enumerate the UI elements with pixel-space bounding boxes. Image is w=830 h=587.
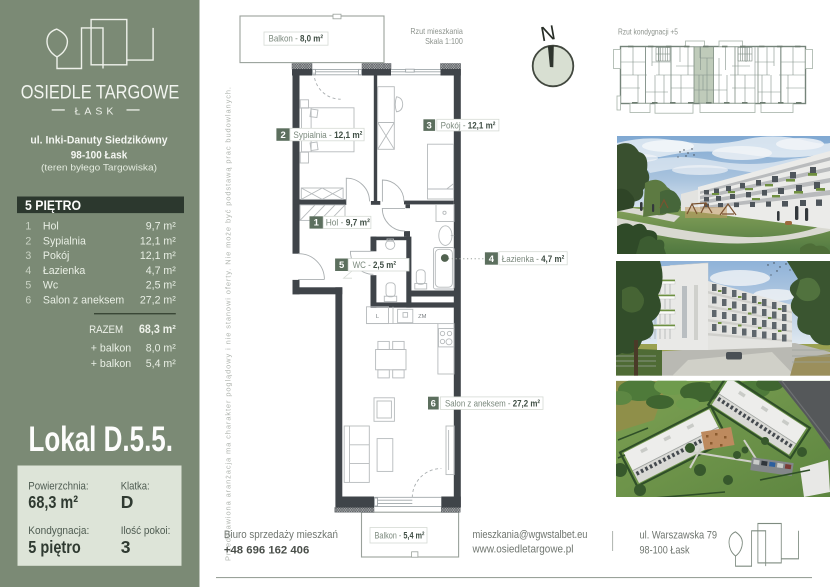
svg-text:5 piętro: 5 piętro — [28, 537, 81, 557]
svg-text:12,1 m²: 12,1 m² — [140, 250, 176, 262]
svg-text:Pokój - 12,1 m²: Pokój - 12,1 m² — [441, 120, 496, 130]
svg-text:ŁASK: ŁASK — [75, 106, 118, 118]
svg-text:Salon z aneksem: Salon z aneksem — [43, 295, 124, 307]
svg-text:Klatka:: Klatka: — [121, 480, 150, 492]
svg-text:Lokal D.5.5.: Lokal D.5.5. — [29, 420, 174, 459]
svg-text:4,7 m²: 4,7 m² — [146, 265, 176, 277]
svg-text:Ilość pokoi:: Ilość pokoi: — [121, 525, 171, 537]
svg-text:Pokój: Pokój — [43, 250, 70, 262]
svg-text:2: 2 — [25, 235, 31, 247]
svg-text:+48 696 162 406: +48 696 162 406 — [224, 545, 309, 557]
svg-text:3: 3 — [427, 120, 432, 131]
svg-text:Hol: Hol — [43, 221, 59, 233]
svg-text:68,3 m²: 68,3 m² — [139, 323, 176, 336]
svg-text:1: 1 — [314, 218, 320, 229]
svg-text:5: 5 — [25, 280, 31, 292]
svg-text:Przedstawiona aranżacja ma cha: Przedstawiona aranżacja ma charakter pog… — [224, 87, 233, 561]
svg-text:Salon z aneksem - 27,2 m²: Salon z aneksem - 27,2 m² — [445, 398, 540, 408]
svg-text:2,5 m²: 2,5 m² — [146, 280, 176, 292]
svg-text:98-100 Łask: 98-100 Łask — [71, 150, 128, 162]
svg-text:5,4 m²: 5,4 m² — [146, 358, 176, 370]
svg-text:Balkon - 5,4 m²: Balkon - 5,4 m² — [375, 531, 425, 541]
svg-text:8,0 m²: 8,0 m² — [146, 343, 176, 355]
svg-text:3: 3 — [121, 537, 131, 557]
svg-text:1: 1 — [25, 221, 31, 233]
svg-text:4: 4 — [489, 254, 495, 265]
svg-text:OSIEDLE TARGOWE: OSIEDLE TARGOWE — [21, 82, 180, 104]
svg-text:Biuro sprzedaży mieszkań: Biuro sprzedaży mieszkań — [224, 529, 338, 541]
svg-text:3: 3 — [25, 250, 31, 262]
svg-text:9,7 m²: 9,7 m² — [146, 221, 176, 233]
svg-text:98-100 Łask: 98-100 Łask — [640, 545, 691, 557]
svg-text:+ balkon: + balkon — [91, 358, 131, 370]
svg-text:4: 4 — [25, 265, 31, 277]
svg-text:6: 6 — [25, 295, 31, 307]
svg-text:5 PIĘTRO: 5 PIĘTRO — [25, 198, 81, 213]
svg-text:Sypialnia - 12,1 m²: Sypialnia - 12,1 m² — [293, 130, 362, 140]
svg-text:L: L — [376, 314, 380, 320]
svg-text:D: D — [121, 492, 134, 512]
svg-text:www.osiedletargowe.pl: www.osiedletargowe.pl — [472, 544, 574, 556]
svg-text:ul. Inki-Danuty Siedzikówny: ul. Inki-Danuty Siedzikówny — [30, 135, 168, 147]
svg-text:Łazienka: Łazienka — [43, 265, 86, 277]
svg-text:Wc: Wc — [43, 280, 59, 292]
svg-text:27,2 m²: 27,2 m² — [140, 295, 176, 307]
svg-text:68,3 m²: 68,3 m² — [28, 492, 78, 512]
svg-text:Sypialnia: Sypialnia — [43, 235, 86, 247]
svg-text:Balkon - 8,0 m²: Balkon - 8,0 m² — [269, 34, 324, 44]
svg-text:N: N — [539, 21, 558, 46]
svg-text:Łazienka - 4,7 m²: Łazienka - 4,7 m² — [502, 254, 564, 264]
svg-text:Rzut mieszkania: Rzut mieszkania — [410, 27, 463, 36]
svg-text:Kondygnacja:: Kondygnacja: — [28, 525, 89, 537]
svg-text:5: 5 — [339, 260, 345, 271]
svg-text:Powierzchnia:: Powierzchnia: — [28, 480, 88, 492]
svg-text:ZM: ZM — [418, 314, 427, 320]
svg-text:ul. Warszawska 79: ul. Warszawska 79 — [640, 530, 718, 542]
svg-text:+ balkon: + balkon — [91, 343, 131, 355]
svg-text:Skala 1:100: Skala 1:100 — [425, 37, 463, 46]
svg-text:WC - 2,5 m²: WC - 2,5 m² — [353, 260, 396, 270]
svg-text:mieszkania@wgwstalbet.eu: mieszkania@wgwstalbet.eu — [473, 529, 588, 541]
svg-text:2: 2 — [280, 130, 285, 141]
svg-text:RAZEM: RAZEM — [89, 324, 123, 336]
svg-text:(teren byłego Targowiska): (teren byłego Targowiska) — [41, 163, 157, 173]
svg-text:12,1 m²: 12,1 m² — [140, 235, 176, 247]
svg-text:Hol - 9,7 m²: Hol - 9,7 m² — [326, 218, 370, 228]
svg-text:Rzut kondygnacji +5: Rzut kondygnacji +5 — [618, 28, 678, 37]
svg-text:6: 6 — [431, 399, 436, 410]
